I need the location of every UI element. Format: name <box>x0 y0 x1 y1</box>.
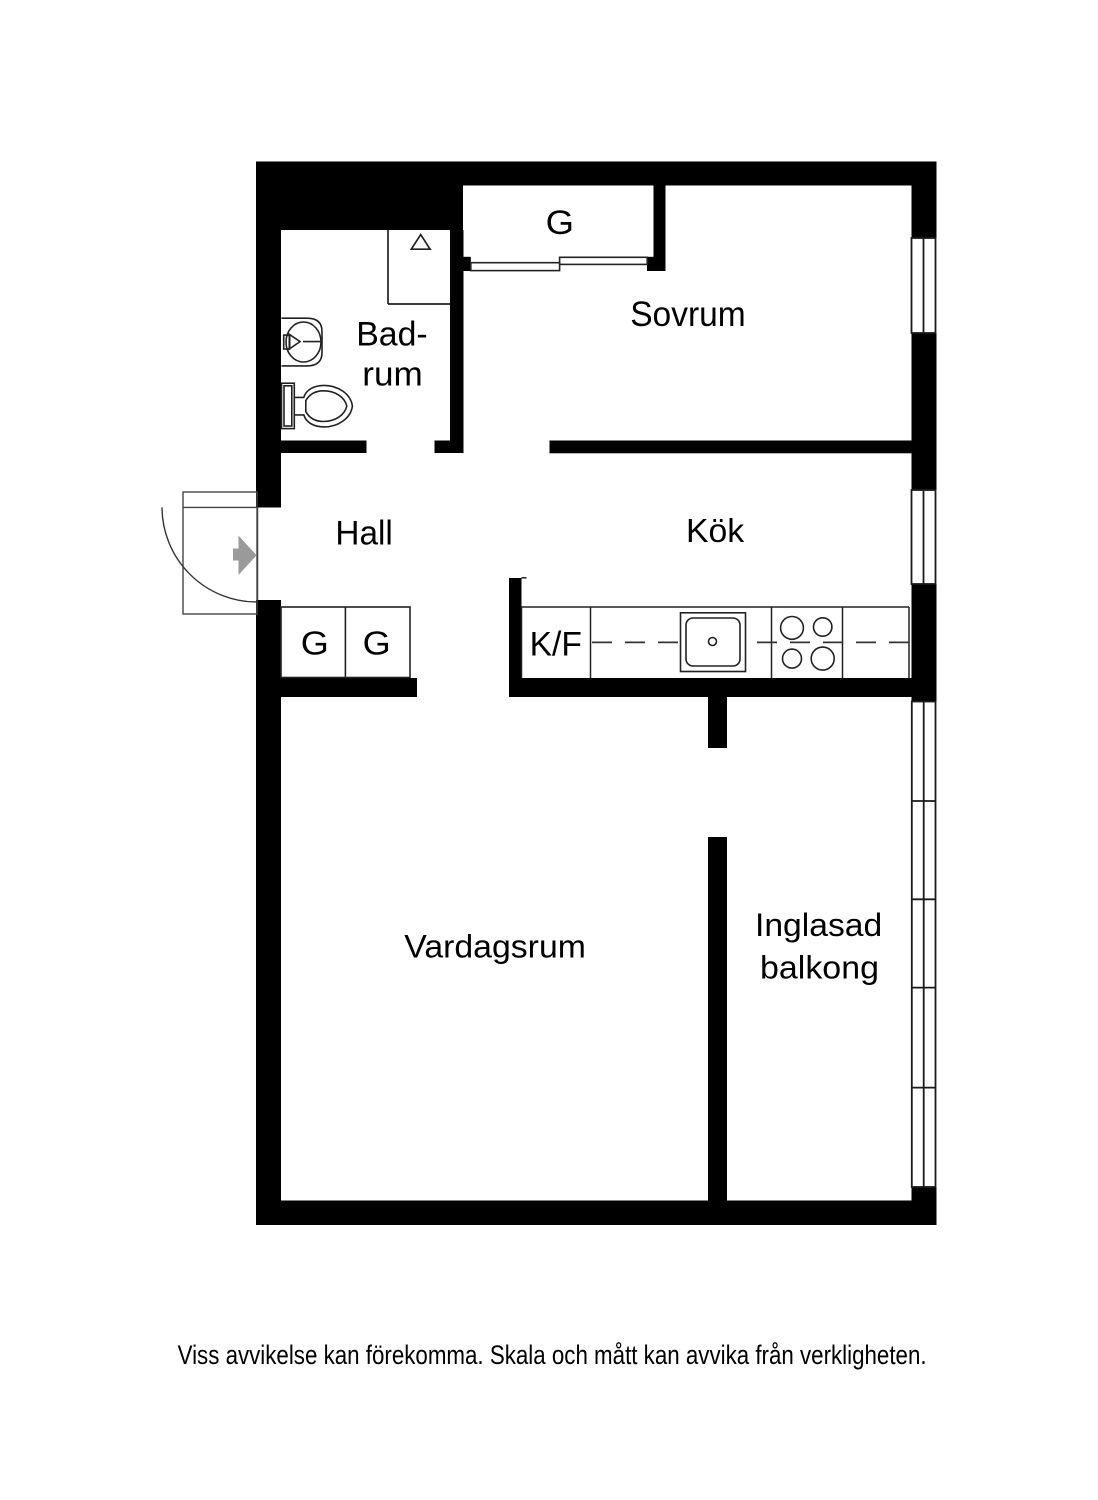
svg-text:Kök: Kök <box>686 512 745 549</box>
svg-text:Bad-: Bad- <box>356 316 428 354</box>
svg-text:Inglasad: Inglasad <box>755 907 882 943</box>
svg-text:G: G <box>301 626 329 663</box>
svg-text:balkong: balkong <box>760 950 879 986</box>
svg-text:K/F: K/F <box>530 626 582 664</box>
svg-text:G: G <box>363 626 391 663</box>
svg-text:rum: rum <box>362 356 423 394</box>
svg-text:G: G <box>546 204 574 242</box>
svg-text:Vardagsrum: Vardagsrum <box>404 929 586 965</box>
svg-text:Sovrum: Sovrum <box>630 294 746 334</box>
svg-text:Hall: Hall <box>335 515 392 553</box>
svg-text:Viss avvikelse kan förekomma.: Viss avvikelse kan förekomma. Skala och … <box>178 1340 927 1370</box>
